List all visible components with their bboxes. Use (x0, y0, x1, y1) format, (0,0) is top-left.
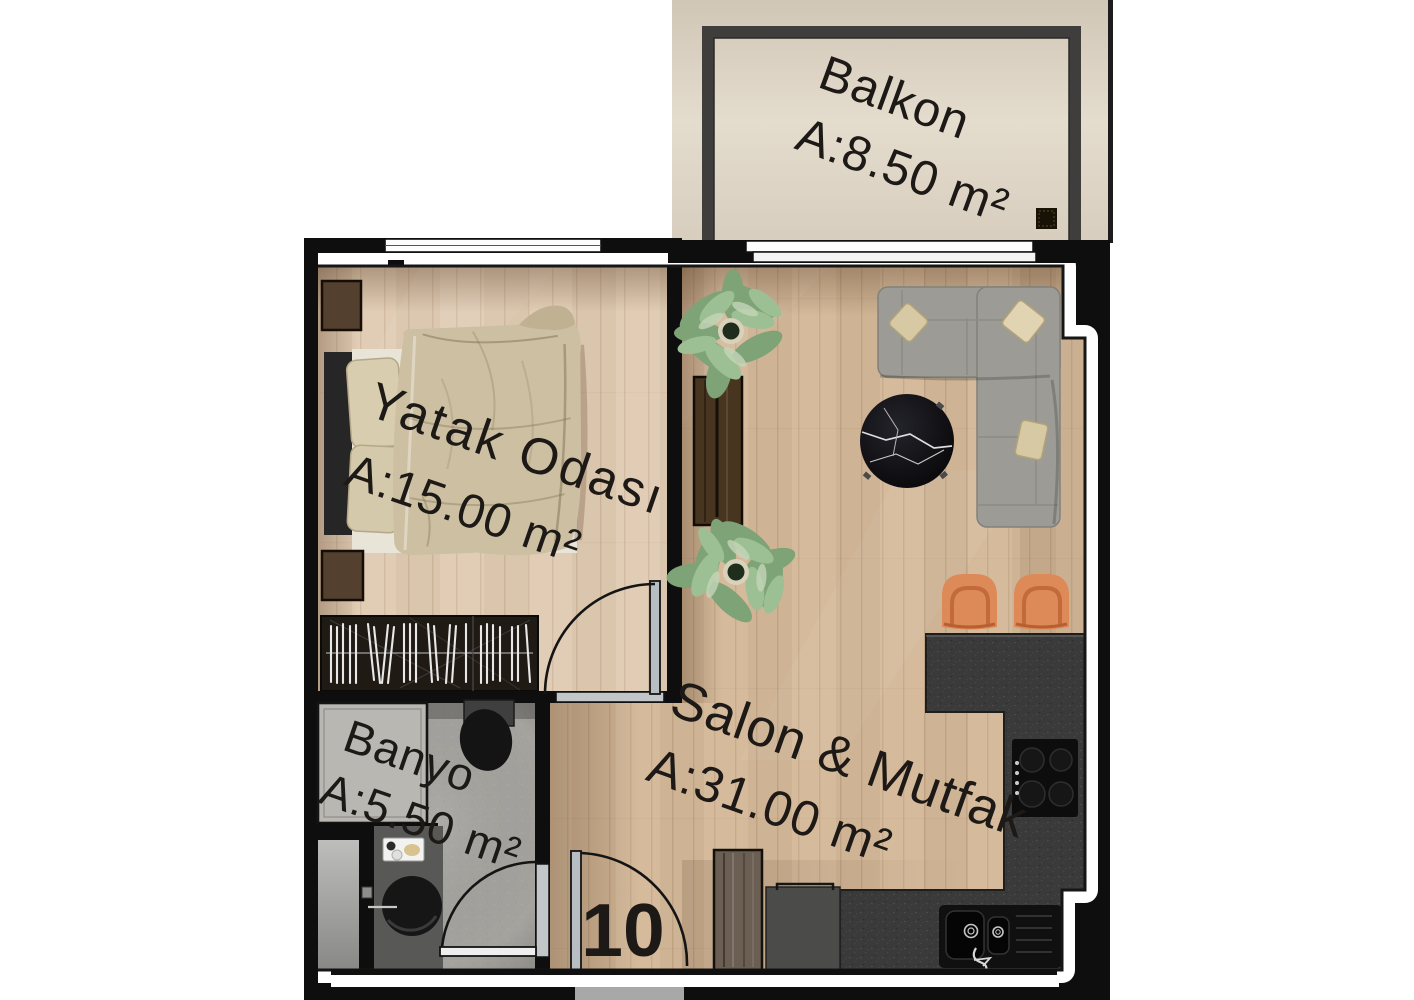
svg-text:10: 10 (581, 888, 664, 972)
